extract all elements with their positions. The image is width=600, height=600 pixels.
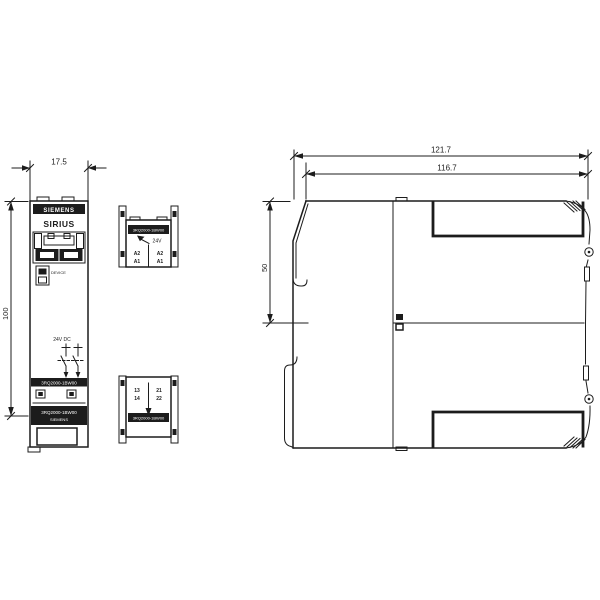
bottom-label-assembly: 3RQ2000-1BW00 SIEMENS: [28, 403, 87, 452]
side-body-outline: [285, 198, 585, 451]
front-pocket-lower: [285, 357, 298, 448]
terminal-label-a1-right: A1: [157, 259, 164, 265]
mounting-direction-arrow: [146, 383, 152, 416]
bottom-label-band: [31, 406, 87, 425]
top-voltage-label: 24V: [153, 239, 163, 245]
terminal-label-21: 21: [156, 388, 162, 394]
terminal-cover-top: [433, 202, 583, 237]
terminal-cover-bottom: [433, 412, 583, 448]
contact-circuit-symbol: [58, 344, 84, 378]
bottom-part-number-label: 3RQ2000-1BW00: [133, 415, 165, 420]
dim-front-width-label: 17.5: [51, 158, 67, 167]
drawing-canvas: 17.5 100 SIEMENS SIRIUS: [0, 0, 600, 600]
bottom-screws: [36, 390, 76, 398]
dim-side-upper-label: 50: [260, 264, 269, 272]
latch-detail: [396, 324, 403, 330]
brand-label: SIEMENS: [43, 208, 74, 214]
front-pocket-upper-hook: [293, 278, 307, 286]
bottom-band-line2: SIEMENS: [50, 417, 68, 422]
front-terminal-block: [33, 232, 85, 263]
rear-slot: [584, 366, 589, 380]
rear-slot: [585, 267, 590, 281]
dim-side-overall-label: 121.7: [431, 146, 452, 155]
side-view: 121.7 116.7 50: [260, 146, 593, 451]
label-window: [37, 428, 77, 445]
terminal-label-a2-left: A2: [134, 251, 141, 257]
device-led-indicator: DEVICE: [36, 266, 66, 285]
latch-detail: [396, 314, 403, 320]
dim-front-height-label: 100: [1, 307, 10, 320]
front-body: SIEMENS SIRIUS DEVICE 24V DC: [28, 197, 88, 452]
led-label: DEVICE: [51, 270, 66, 275]
terminal-label-13: 13: [134, 388, 140, 394]
top-part-number-label: 3RQ2000-1BW00: [133, 227, 165, 232]
terminal-label-22: 22: [156, 396, 162, 402]
terminal-label-14: 14: [134, 396, 140, 402]
product-line-label: SIRIUS: [43, 219, 74, 229]
terminal-label-a1-left: A1: [134, 259, 141, 265]
bottom-band-line1: 3RQ2000-1BW00: [41, 410, 77, 415]
bottom-terminal-view: 13 14 21 22 3RQ2000-1BW00: [119, 376, 178, 443]
top-terminal-view: 3RQ2000-1BW00 24V A2 A1 A2 A1: [119, 206, 178, 267]
voltage-pointer-arrow: [137, 236, 149, 244]
terminal-label-a2-right: A2: [157, 251, 164, 257]
front-view: 17.5 100 SIEMENS SIRIUS: [1, 158, 106, 453]
dim-side-body-label: 116.7: [437, 164, 457, 173]
dim-side-body: 116.7: [303, 163, 592, 199]
voltage-label: 24V DC: [53, 337, 71, 343]
technical-drawing: 17.5 100 SIEMENS SIRIUS: [0, 0, 600, 600]
dim-front-height: 100: [1, 198, 28, 420]
part-number-label: 3RQ2000-1BW00: [41, 380, 77, 385]
dim-front-width: 17.5: [12, 158, 106, 201]
